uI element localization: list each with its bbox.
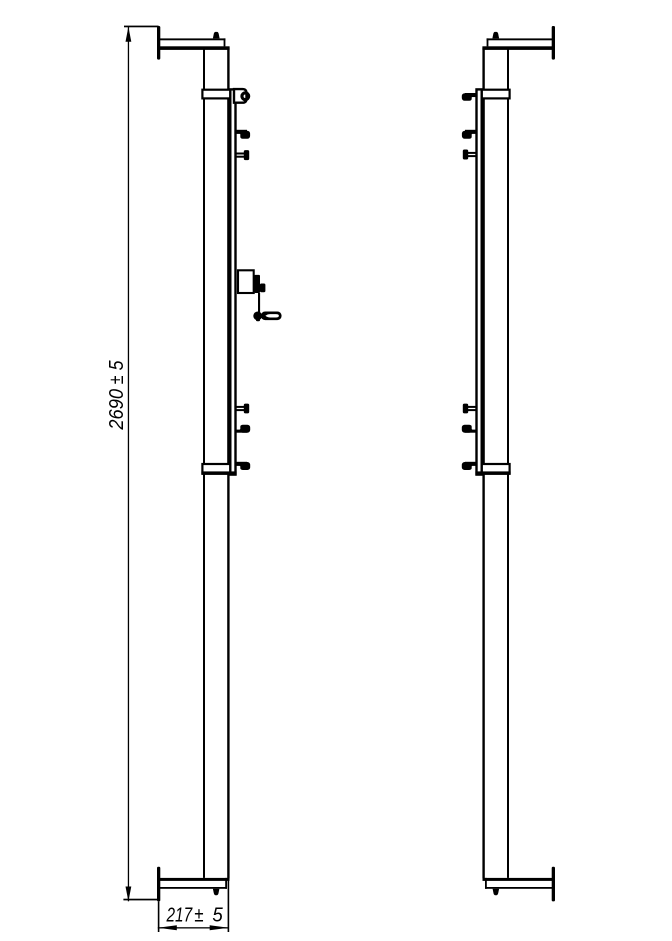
svg-text:5: 5	[212, 905, 223, 927]
svg-text:±: ±	[106, 375, 128, 384]
svg-text:5: 5	[106, 360, 128, 371]
svg-text:217: 217	[166, 905, 193, 927]
svg-text:2690: 2690	[106, 389, 128, 431]
svg-text:±: ±	[194, 905, 203, 927]
